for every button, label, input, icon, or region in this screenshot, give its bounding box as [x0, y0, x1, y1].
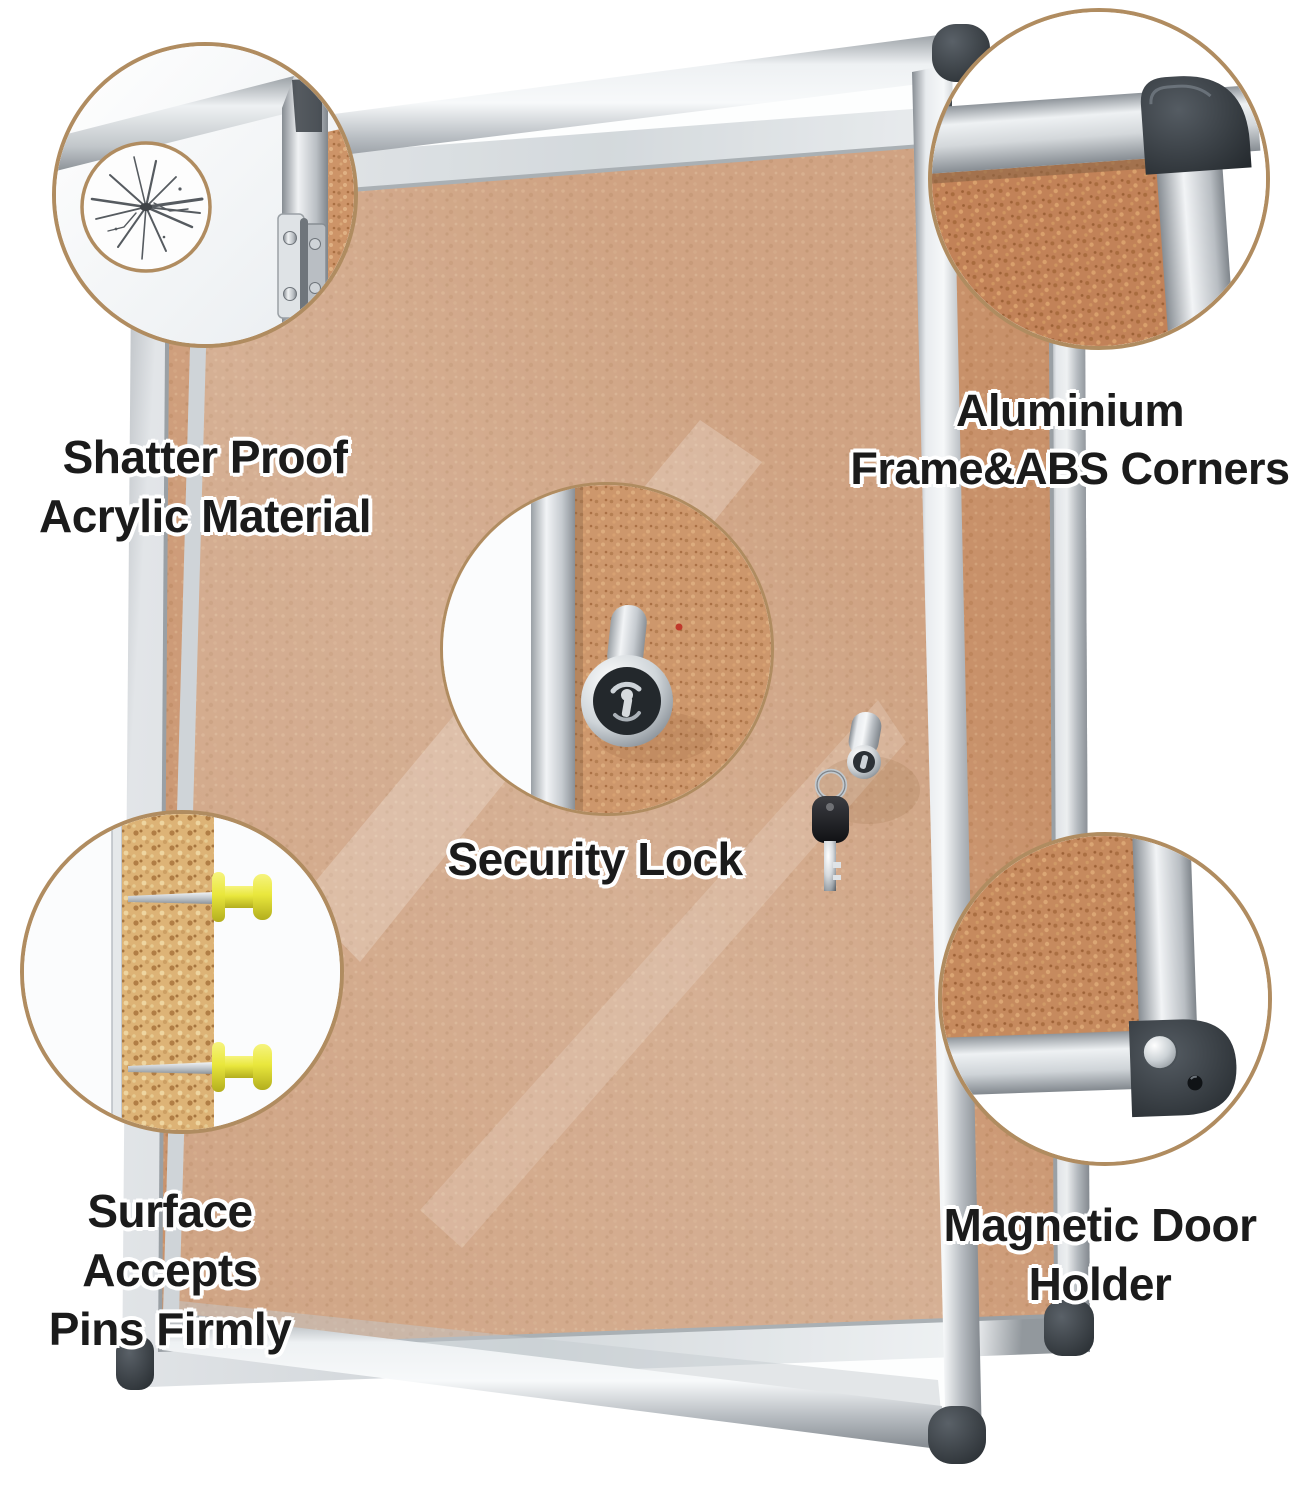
cork-cross-section: [122, 814, 214, 1130]
label-pin-surface: Surface Accepts Pins Firmly: [0, 1182, 340, 1359]
label-magnetic-holder: Magnetic Door Holder: [900, 1196, 1289, 1314]
label-line: Surface Accepts: [82, 1185, 257, 1296]
label-security-lock: Security Lock: [395, 830, 795, 889]
abs-corner-cap: [1129, 1017, 1238, 1117]
label-line: Aluminium: [956, 385, 1184, 436]
label-aluminium-corners: Aluminium Frame&ABS Corners: [840, 382, 1289, 497]
label-line: Pins Firmly: [49, 1303, 291, 1355]
label-line: Security Lock: [447, 833, 742, 885]
label-line: Shatter Proof: [63, 431, 348, 483]
red-dot: [676, 624, 683, 631]
label-line: Holder: [1029, 1258, 1172, 1310]
label-line: Acrylic Material: [39, 490, 371, 542]
label-shatterproof: Shatter Proof Acrylic Material: [5, 428, 405, 546]
abs-corner-door-bottom: [928, 1406, 986, 1464]
callout-security-lock: [440, 482, 774, 816]
callout-pin-surface: [20, 810, 344, 1134]
door-frame-rail: [531, 485, 575, 813]
product-feature-image: Shatter Proof Acrylic Material Aluminium…: [0, 0, 1289, 1500]
label-line: Magnetic Door: [944, 1199, 1257, 1251]
label-line: Frame&ABS Corners: [850, 443, 1289, 494]
callout-aluminium-abs-corner: [928, 8, 1270, 350]
acrylic-layer-edge: [112, 814, 122, 1130]
magnet-disc: [1142, 1035, 1177, 1070]
callout-shatterproof-acrylic: [52, 42, 358, 348]
callout-magnetic-holder: [938, 832, 1272, 1166]
